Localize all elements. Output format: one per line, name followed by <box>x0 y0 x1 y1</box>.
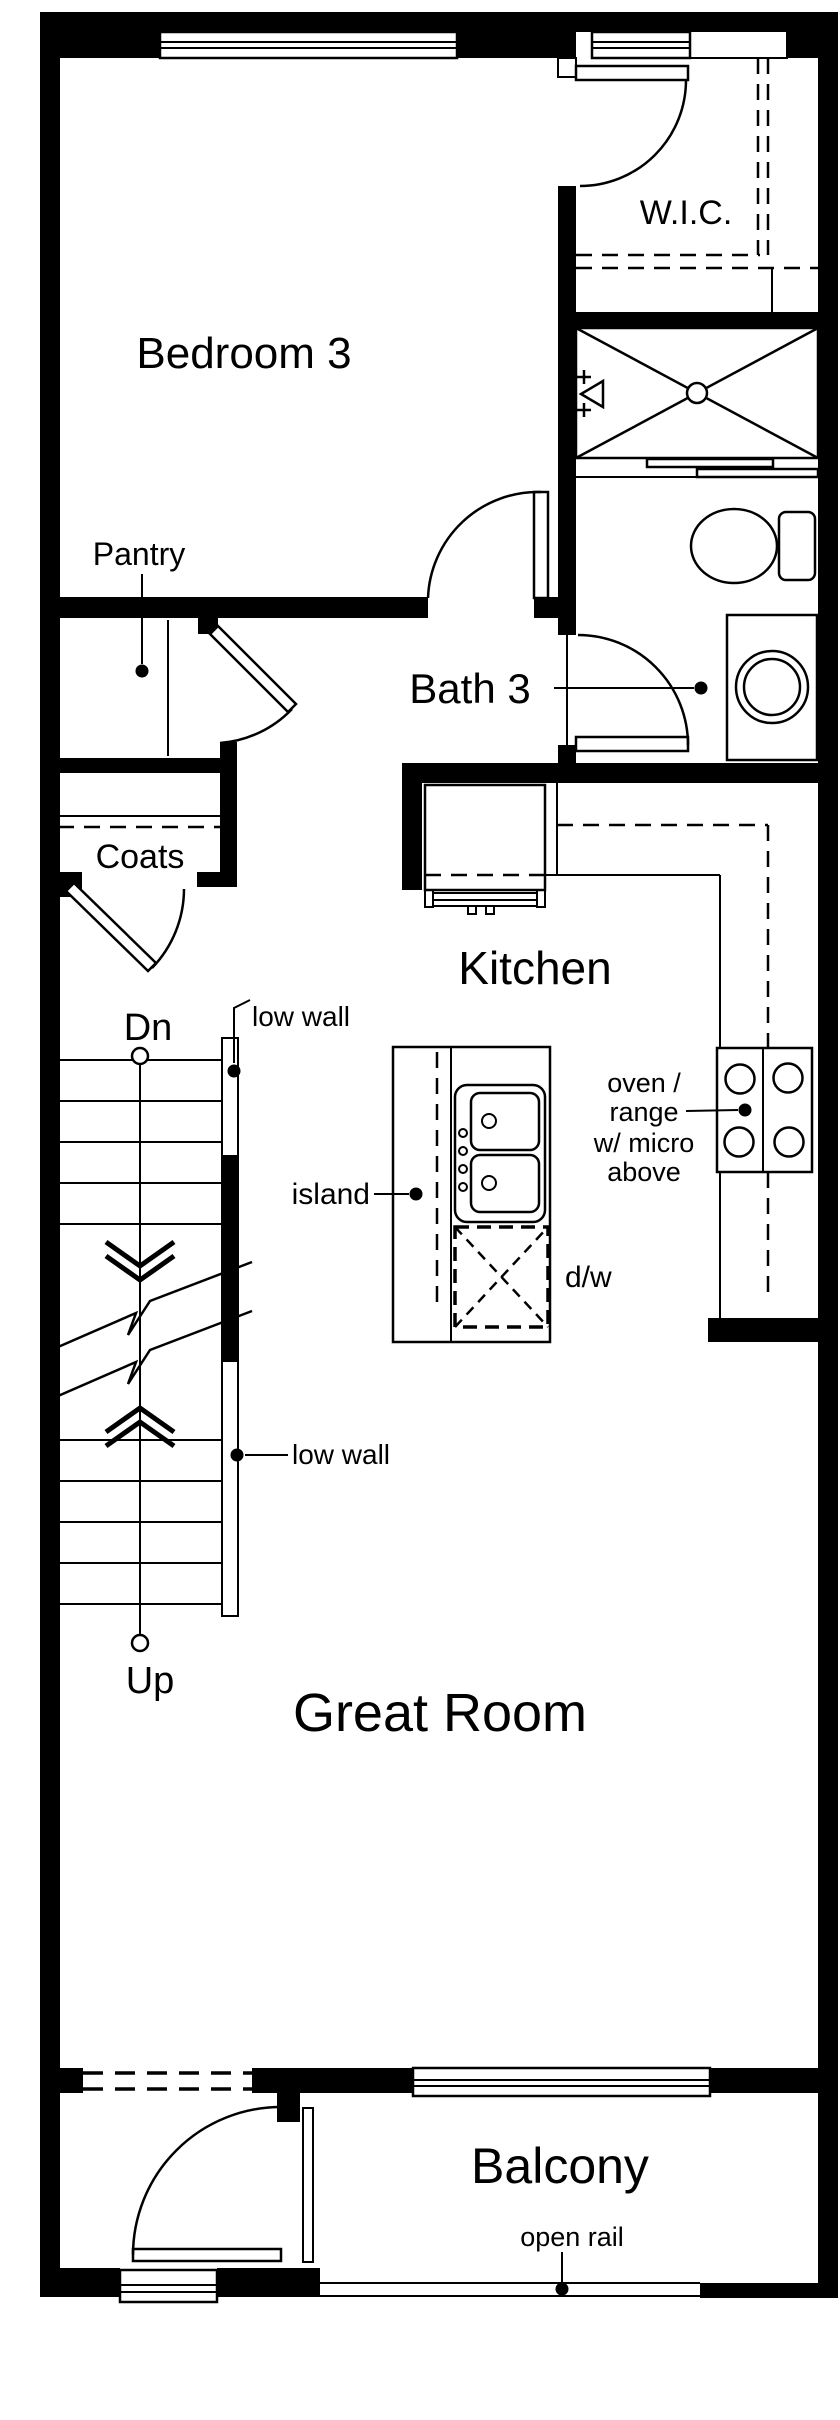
balcony-door <box>133 2107 313 2262</box>
refrigerator <box>425 785 545 914</box>
wic-window <box>592 32 690 58</box>
washer <box>727 615 817 760</box>
shower-sliding-doors <box>576 459 818 477</box>
bath3-label: Bath 3 <box>409 665 530 712</box>
svg-text:above: above <box>607 1157 681 1187</box>
coats-shelf <box>58 816 220 827</box>
pantry-door <box>210 626 296 743</box>
balcony-rail <box>300 2283 700 2296</box>
dishwasher-label: d/w <box>565 1261 612 1294</box>
stair-low-wall <box>222 1038 238 1616</box>
pantry-label: Pantry <box>93 536 185 572</box>
coats-door <box>66 883 184 971</box>
stair-end-marker <box>132 1635 148 1651</box>
low-wall-lower-label: low wall <box>292 1439 390 1470</box>
toilet <box>691 509 815 583</box>
shower-valve-icon <box>577 370 603 417</box>
island-leader <box>374 1188 423 1201</box>
dishwasher <box>455 1227 548 1327</box>
great-room-label: Great Room <box>293 1683 587 1743</box>
low-wall-lower-leader <box>231 1449 289 1462</box>
svg-text:w/ micro: w/ micro <box>593 1128 695 1158</box>
stairs-down-label: Dn <box>124 1007 173 1049</box>
kitchen-label: Kitchen <box>458 942 611 994</box>
bedroom-corner-notch <box>558 58 576 77</box>
wic-closet-rods <box>576 58 818 312</box>
island-label: island <box>292 1178 370 1211</box>
coats-label: Coats <box>96 838 185 876</box>
bedroom3-label: Bedroom 3 <box>136 329 351 378</box>
bedroom-window <box>160 32 457 58</box>
balcony-label: Balcony <box>471 2138 649 2194</box>
shower <box>576 328 818 477</box>
stairs-up-label: Up <box>126 1660 175 1702</box>
island-sink <box>455 1085 545 1222</box>
wic-wall-inset <box>690 32 787 58</box>
great-room-cased-opening <box>83 2073 252 2089</box>
wic-door <box>576 66 688 186</box>
stairs <box>58 1038 252 1651</box>
floor-plan-drawing: Bedroom 3 W.I.C. <box>0 0 840 2420</box>
bath3-leader <box>554 682 708 695</box>
floor-plan-page: Bedroom 3 W.I.C. <box>0 0 840 2420</box>
bedroom-door <box>428 492 548 598</box>
bath3-door <box>567 635 688 751</box>
wic-label: W.I.C. <box>640 194 733 232</box>
balcony-window <box>120 2270 217 2302</box>
stair-start-marker <box>132 1048 148 1064</box>
svg-text:range: range <box>609 1097 678 1127</box>
open-rail-label: open rail <box>520 2222 624 2252</box>
pantry-leader <box>136 574 149 678</box>
open-rail-leader <box>556 2252 569 2296</box>
low-wall-upper-label: low wall <box>252 1001 350 1032</box>
sliding-glass-door <box>413 2068 710 2096</box>
svg-text:oven /: oven / <box>607 1068 681 1098</box>
